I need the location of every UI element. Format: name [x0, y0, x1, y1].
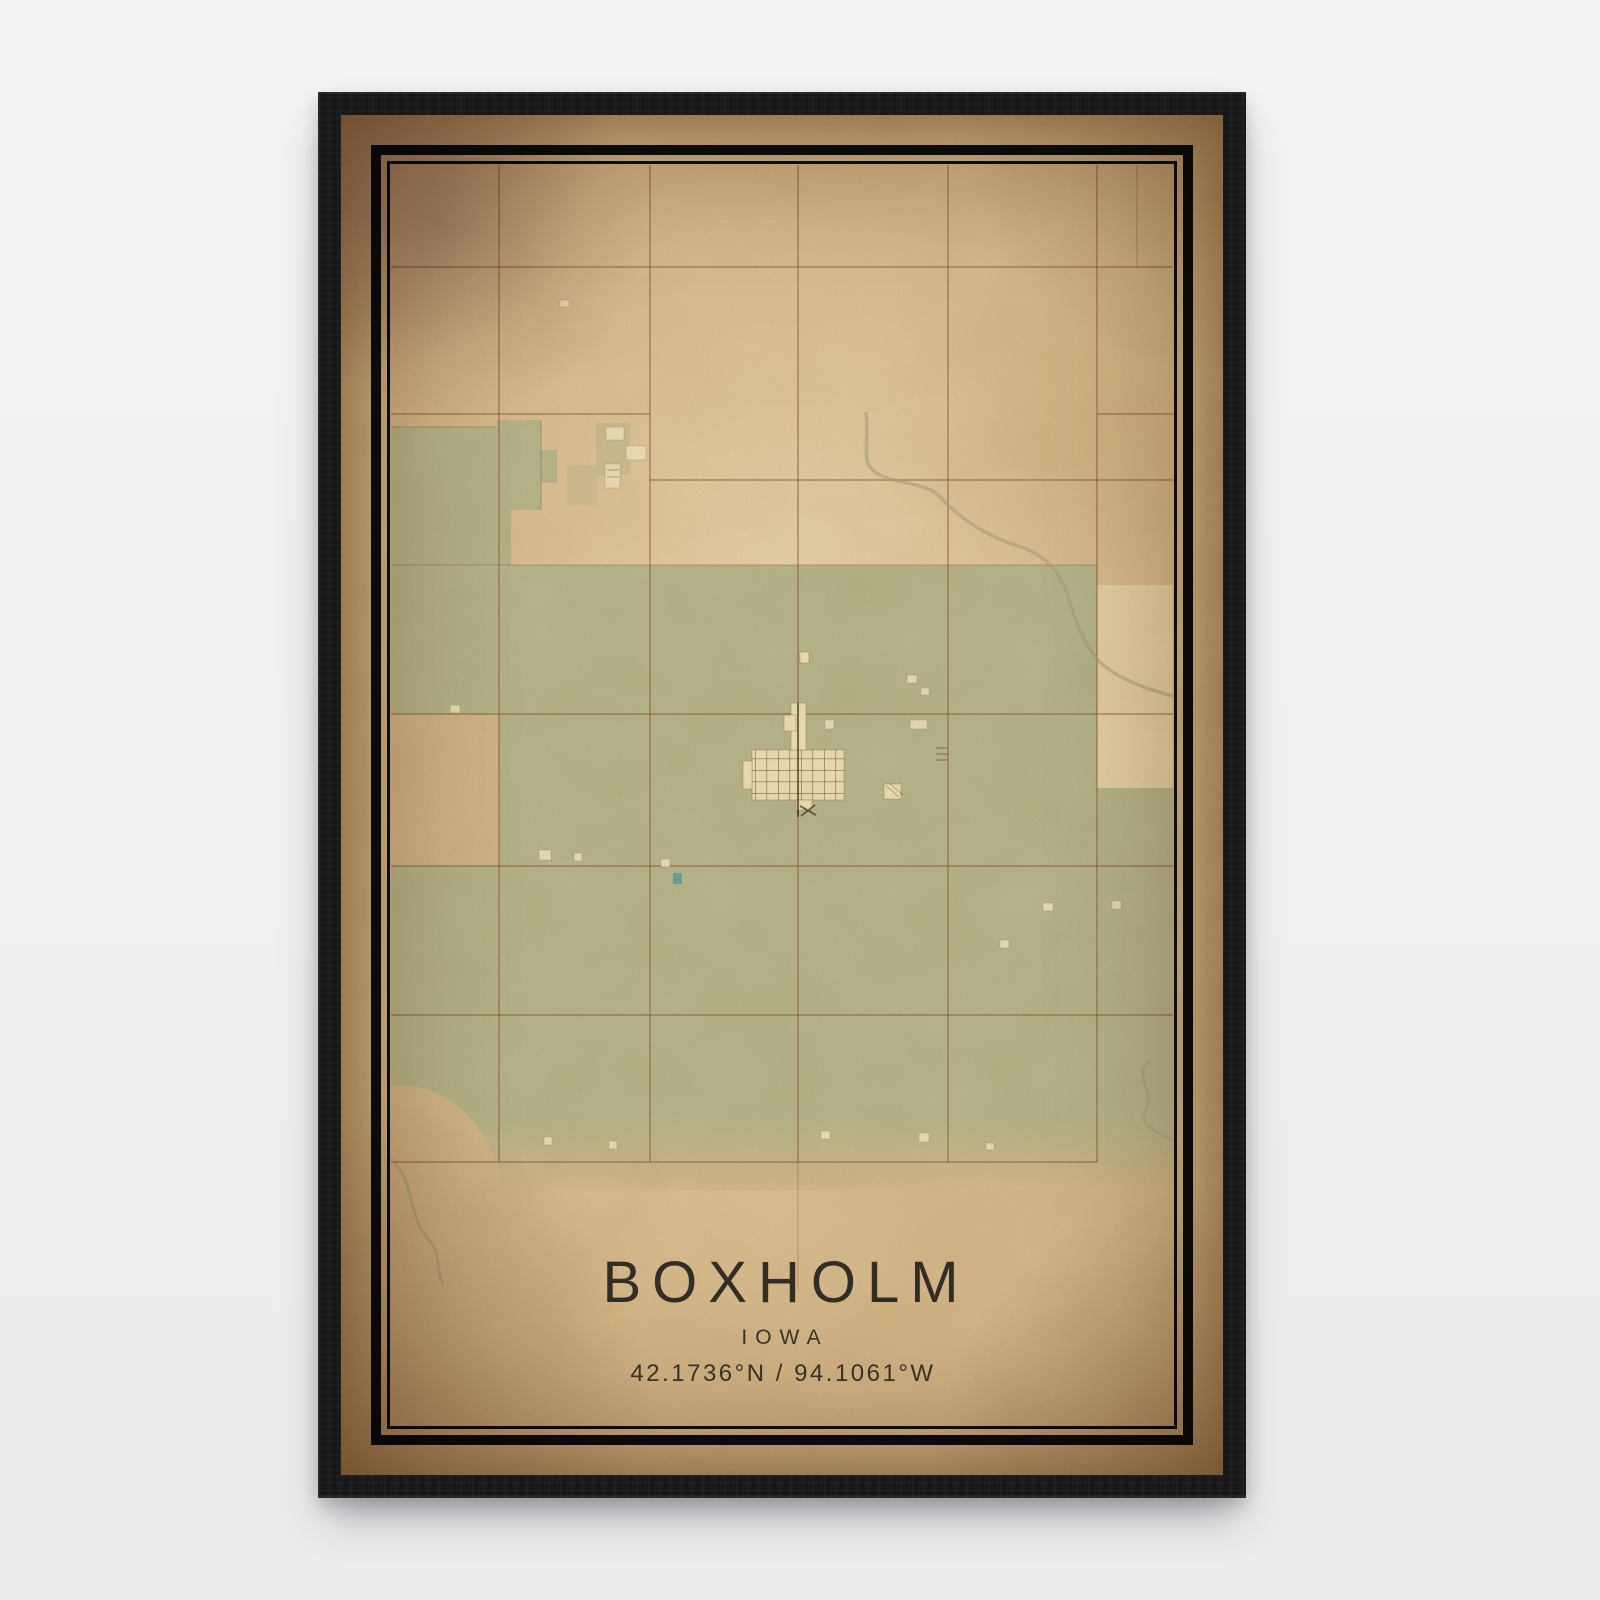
product-photo: BOXHOLM IOWA 42.1736°N / 94.1061°W [0, 0, 1600, 1600]
poster-frame: BOXHOLM IOWA 42.1736°N / 94.1061°W [318, 92, 1246, 1498]
keyline-inner [387, 161, 1177, 1429]
poster-paper: BOXHOLM IOWA 42.1736°N / 94.1061°W [341, 115, 1223, 1475]
